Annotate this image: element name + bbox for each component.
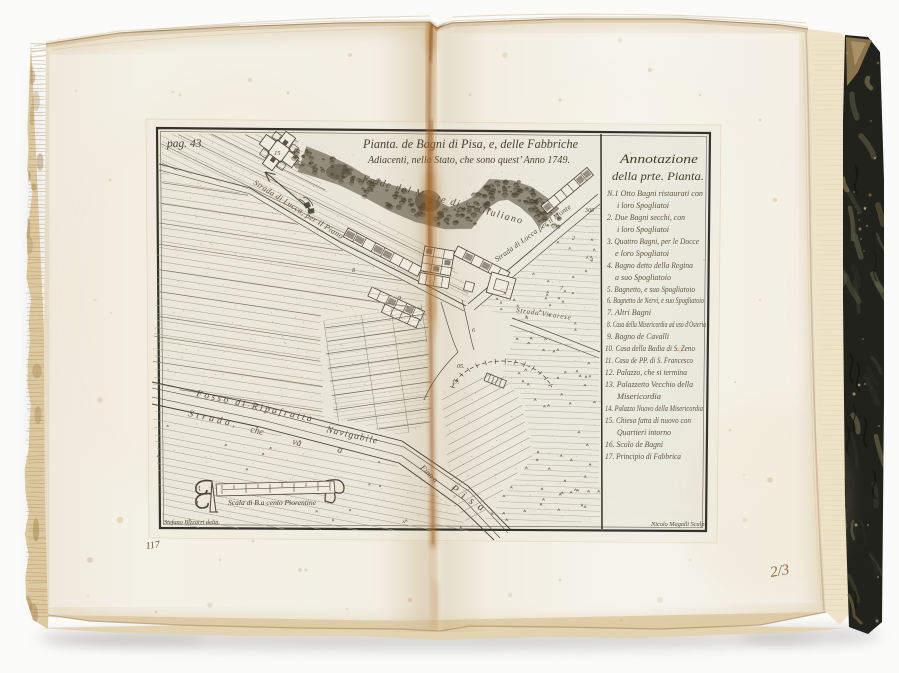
svg-text:17. Principio di Fabbrica: 17. Principio di Fabbrica [605, 452, 681, 461]
svg-text:8. Casa della Misericordia ad: 8. Casa della Misericordia ad uso d'Oste… [607, 320, 706, 329]
svg-text:11. Casa de PP. di S. Francesc: 11. Casa de PP. di S. Francesco [605, 356, 693, 365]
svg-text:17.: 17. [452, 380, 460, 386]
svg-text:16. Scolo de Bagni: 16. Scolo de Bagni [605, 440, 664, 449]
svg-text:6. Bagnetto de Nervi, e suo Sp: 6. Bagnetto de Nervi, e suo Spogliatoio [607, 296, 704, 305]
svg-text:della prte. Pianta.: della prte. Pianta. [612, 171, 704, 183]
svg-text:N.1 Otto Bagni ristaurati con: N.1 Otto Bagni ristaurati con [606, 189, 703, 198]
svg-text:8: 8 [352, 268, 355, 274]
svg-text:5. Bagnetto, e suo Spogliatoio: 5. Bagnetto, e suo Spogliatoio [607, 285, 695, 294]
svg-text:4. Bagno detto della Regina: 4. Bagno detto della Regina [607, 261, 693, 270]
svg-text:4: 4 [590, 257, 593, 264]
svg-text:3. Quattro Bagni, per le Docce: 3. Quattro Bagni, per le Docce [606, 237, 699, 246]
svg-text:2/3: 2/3 [769, 562, 791, 581]
svg-text:15: 15 [274, 150, 281, 157]
svg-text:Nicolo Magalli Sculp.: Nicolo Magalli Sculp. [650, 521, 706, 528]
svg-text:9: 9 [398, 296, 401, 302]
svg-text:15. Chiesa fatta di nuovo con: 15. Chiesa fatta di nuovo con [605, 416, 691, 425]
svg-text:7. Altri Bagni: 7. Altri Bagni [607, 308, 652, 317]
svg-text:05.: 05. [457, 364, 465, 370]
svg-text:i loro Spogliatoi: i loro Spogliatoi [617, 201, 670, 210]
svg-text:13. Palazzetto Vecchio della: 13. Palazzetto Vecchio della [605, 380, 693, 389]
svg-text:a suo Spogliatoio: a suo Spogliatoio [615, 273, 671, 282]
svg-text:Pianta. de Bagni di Pisa, e, d: Pianta. de Bagni di Pisa, e, delle Fabbr… [362, 137, 579, 151]
svg-text:12. Palazzo, che si termina: 12. Palazzo, che si termina [605, 368, 687, 377]
svg-text:Adiacenti, nello Stato, che so: Adiacenti, nello Stato, che sono quest’ … [367, 155, 570, 166]
svg-text:2. Due Bagni secchi, con: 2. Due Bagni secchi, con [607, 213, 685, 222]
svg-text:308: 308 [584, 208, 594, 214]
svg-text:e loro Spogliatoi: e loro Spogliatoi [615, 249, 670, 258]
svg-text:2: 2 [572, 236, 575, 242]
svg-text:Scala di B.a cento Fiorentine: Scala di B.a cento Fiorentine [228, 498, 317, 507]
svg-text:117: 117 [145, 539, 161, 552]
svg-text:14. Palazzo Nuovo della Miseri: 14. Palazzo Nuovo della Misericordia [605, 404, 703, 413]
svg-text:9. Bagno de Cavalli: 9. Bagno de Cavalli [607, 332, 670, 341]
svg-text:6: 6 [472, 328, 475, 334]
svg-text:Misericordia: Misericordia [616, 392, 661, 401]
svg-text:pag. 43.: pag. 43. [166, 138, 204, 150]
svg-text:Quartieri intorno: Quartieri intorno [617, 428, 671, 437]
svg-text:Stefano Bizzarri delin.: Stefano Bizzarri delin. [164, 519, 220, 526]
